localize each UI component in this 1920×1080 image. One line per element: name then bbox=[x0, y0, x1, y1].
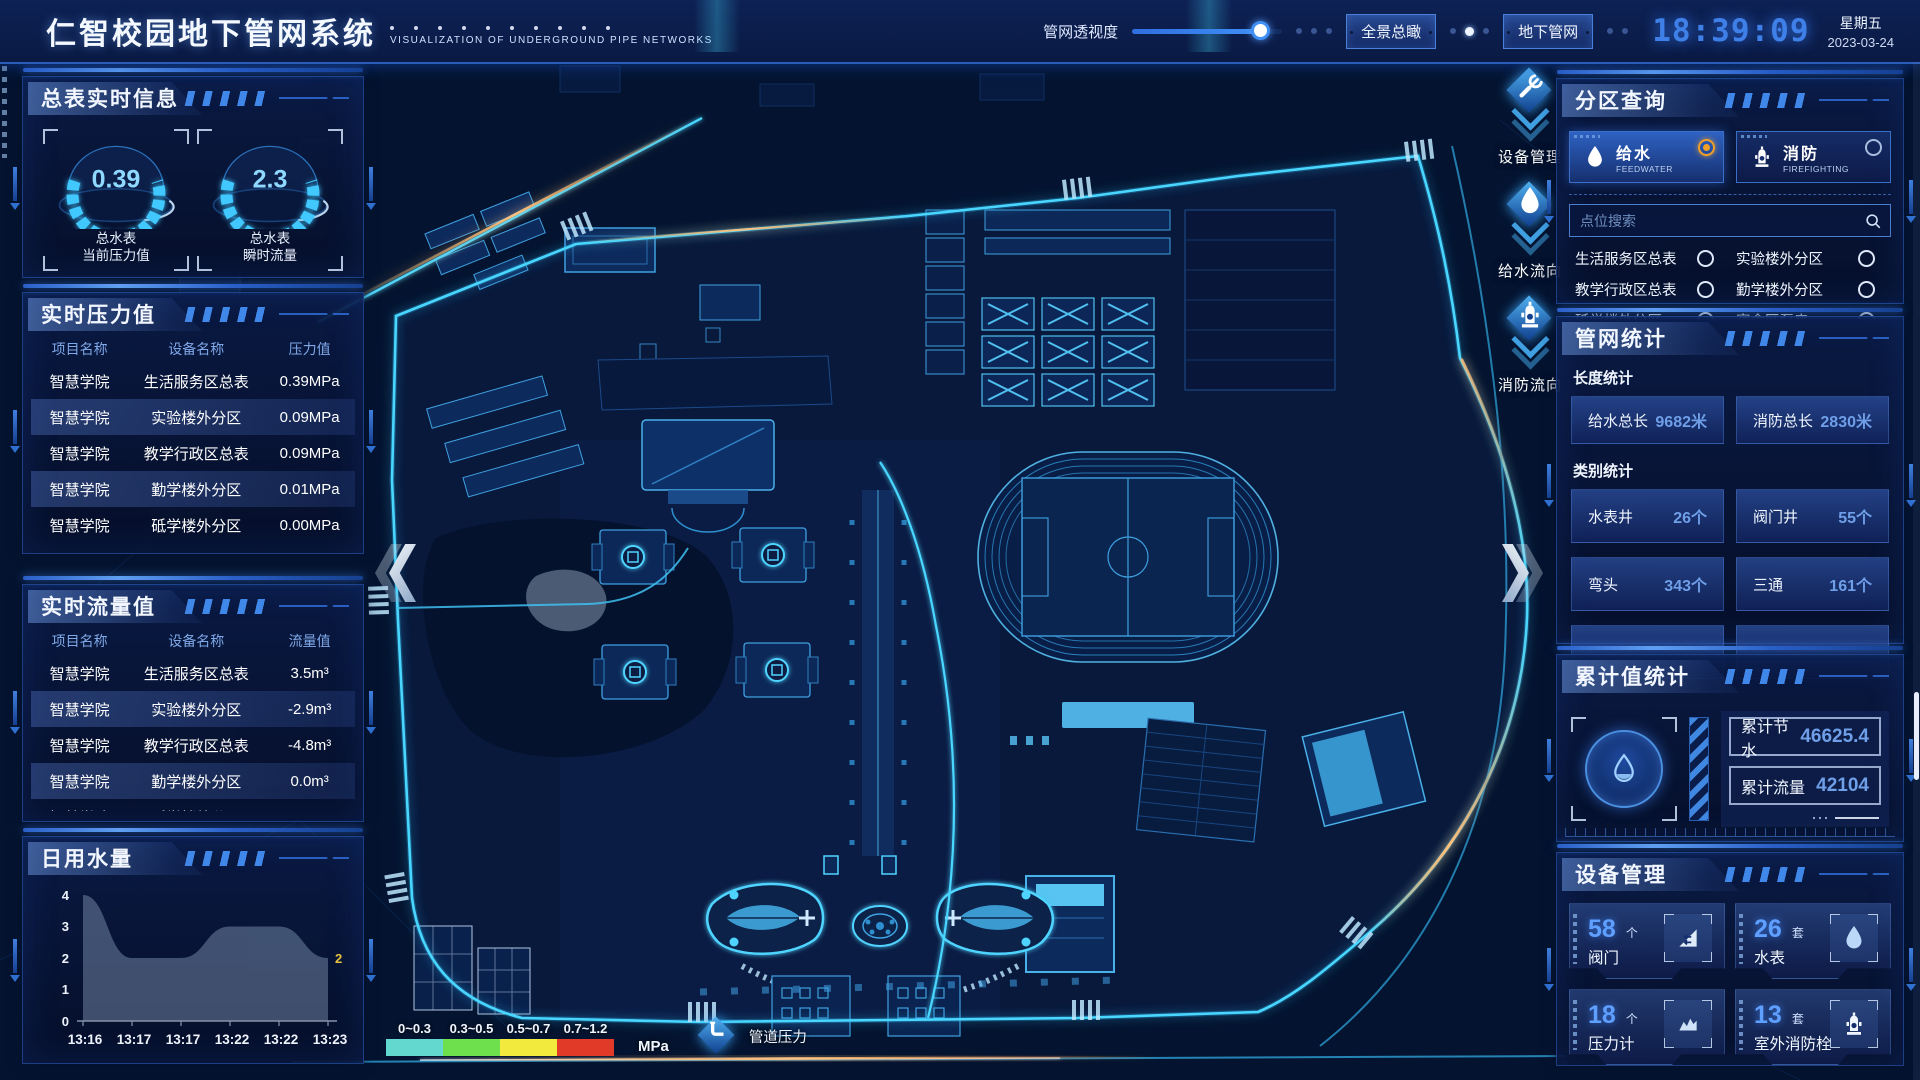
panel-title: 管网统计 bbox=[1575, 323, 1667, 353]
panel-side-decoration bbox=[369, 410, 373, 444]
accumulated-value-row: 累计流量42104 bbox=[1729, 766, 1881, 805]
zone-item[interactable]: 勤学楼外分区 bbox=[1730, 274, 1891, 305]
pressure-gauge-icon bbox=[1675, 1011, 1701, 1037]
panel-side-decoration bbox=[13, 410, 17, 444]
device-card-water-meters[interactable]: 26套 水表 bbox=[1735, 903, 1891, 979]
gauge-label: 当前压力值 bbox=[43, 247, 189, 264]
panel-zone-query: 分区查询 给水 FEEDWATER 消防 FIREFIGHTING bbox=[1556, 78, 1904, 304]
radio-icon bbox=[1697, 281, 1714, 298]
pressure-gauge-widget: 0.39 总水表当前压力值 bbox=[43, 129, 189, 271]
length-stats-label: 长度统计 bbox=[1573, 367, 1903, 388]
stat-box: 消防总长2830米 bbox=[1736, 396, 1889, 444]
title-slashes-decoration bbox=[183, 851, 269, 866]
slider-fill bbox=[1132, 29, 1261, 34]
overview-button-label: 全景总瞰 bbox=[1361, 24, 1421, 41]
table-row[interactable]: 智慧学院实验楼外分区0.09MPa bbox=[31, 399, 355, 435]
svg-text:1: 1 bbox=[62, 982, 69, 997]
accumulated-value-row: 累计节水46625.4 bbox=[1729, 717, 1881, 756]
table-header: 项目名称设备名称流量值 bbox=[23, 627, 363, 655]
svg-text:13:23: 13:23 bbox=[313, 1032, 348, 1047]
svg-text:4: 4 bbox=[62, 888, 70, 903]
pipe-opacity-label: 管网透视度 bbox=[1043, 21, 1118, 42]
dashboard-root: 仁智校园地下管网系统 VISUALIZATION OF UNDERGROUND … bbox=[0, 0, 1920, 1080]
water-saving-icon-frame bbox=[1571, 717, 1677, 821]
panel-pipe-network-stats: 管网统计 长度统计 给水总长9682米 消防总长2830米 类别统计 水表井26… bbox=[1556, 316, 1904, 644]
search-box[interactable] bbox=[1569, 204, 1891, 237]
title-slashes-decoration bbox=[183, 91, 269, 106]
table-row[interactable]: 智慧学院勤学楼外分区0.01MPa bbox=[31, 471, 355, 507]
panel-daily-water-usage: 日用水量 4 3 2 1 0 13:16 13:17 13:17 13:22 1… bbox=[22, 836, 364, 1064]
valve-icon bbox=[1675, 925, 1701, 951]
legend-color-swatch bbox=[386, 1039, 443, 1056]
zone-item[interactable]: 生活服务区总表 bbox=[1569, 243, 1730, 274]
radio-icon bbox=[1697, 250, 1714, 267]
table-row[interactable]: 智慧学院砥学楼外分区0.00MPa bbox=[31, 507, 355, 541]
gauge-icon: 2.3 bbox=[197, 129, 343, 229]
title-line-decoration bbox=[279, 313, 349, 315]
legend-unit-label: MPa bbox=[638, 1038, 669, 1055]
panel-side-decoration bbox=[369, 939, 373, 973]
legend-color-swatch bbox=[443, 1039, 500, 1056]
area-series bbox=[83, 895, 328, 1021]
panel-device-management: 设备管理 58个 阀门 26套 水表 bbox=[1556, 852, 1904, 1066]
title-line-decoration bbox=[1819, 337, 1889, 339]
feedwater-label-en: FEEDWATER bbox=[1616, 164, 1673, 174]
pipe-icon bbox=[706, 1020, 726, 1040]
svg-text:13:16: 13:16 bbox=[68, 1032, 103, 1047]
table-header: 项目名称设备名称压力值 bbox=[23, 335, 363, 363]
series-end-value-label: 2 bbox=[335, 951, 342, 966]
svg-text:2: 2 bbox=[62, 951, 69, 966]
dots-decoration bbox=[1450, 27, 1489, 36]
title-line-decoration bbox=[1819, 99, 1889, 101]
panel-realtime-pressure: 实时压力值 项目名称设备名称压力值 智慧学院生活服务区总表0.39MPa 智慧学… bbox=[22, 292, 364, 554]
device-card-valves[interactable]: 58个 阀门 bbox=[1569, 903, 1725, 979]
fountain bbox=[853, 906, 907, 946]
feedwater-toggle[interactable]: 给水 FEEDWATER bbox=[1569, 131, 1724, 183]
panel-side-decoration bbox=[1547, 464, 1551, 498]
stat-box: 给水总长9682米 bbox=[1571, 396, 1724, 444]
panel-side-decoration bbox=[369, 691, 373, 725]
firefighting-label: 消防 bbox=[1783, 140, 1849, 164]
app-title: 仁智校园地下管网系统 bbox=[46, 9, 376, 53]
radio-icon bbox=[1698, 139, 1715, 156]
pipe-pressure-legend: 0~0.3 0.3~0.5 0.5~0.7 0.7~1.2 MPa 管道压力 bbox=[386, 1016, 807, 1056]
header-bar: 仁智校园地下管网系统 VISUALIZATION OF UNDERGROUND … bbox=[0, 0, 1920, 64]
header-dots-decoration bbox=[390, 26, 713, 30]
app-subtitle: VISUALIZATION OF UNDERGROUND PIPE NETWOR… bbox=[390, 35, 713, 46]
dashed-divider bbox=[1569, 194, 1891, 195]
hydrant-icon bbox=[1751, 144, 1773, 170]
hydrant-icon bbox=[1842, 1010, 1866, 1038]
water-meter-icon bbox=[1842, 924, 1866, 952]
panel-title: 总表实时信息 bbox=[41, 83, 179, 113]
panel-side-decoration bbox=[369, 167, 373, 201]
gauge-label: 总水表 bbox=[43, 230, 189, 247]
dots-decoration bbox=[1296, 28, 1332, 34]
underground-button-label: 地下管网 bbox=[1518, 24, 1578, 41]
time-display: 18:39:09 bbox=[1652, 13, 1809, 49]
daily-water-chart: 4 3 2 1 0 13:16 13:17 13:17 13:22 13:22 … bbox=[41, 883, 351, 1053]
panel-side-decoration bbox=[1547, 739, 1551, 773]
legend-range-label: 0.5~0.7 bbox=[507, 1021, 551, 1036]
zone-item[interactable]: 教学行政区总表 bbox=[1569, 274, 1730, 305]
panel-side-decoration bbox=[1547, 180, 1551, 214]
title-slashes-decoration bbox=[183, 307, 269, 322]
pressure-legend-label: 管道压力 bbox=[749, 1026, 807, 1047]
underground-pipes-button[interactable]: 地下管网 bbox=[1503, 14, 1593, 49]
dots-decoration bbox=[1607, 28, 1628, 34]
tools-icon bbox=[1515, 72, 1545, 102]
gauge-icon: 0.39 bbox=[43, 129, 189, 229]
svg-text:13:17: 13:17 bbox=[117, 1032, 152, 1047]
panel-title: 实时流量值 bbox=[41, 591, 156, 621]
search-icon bbox=[1864, 212, 1882, 230]
radio-icon bbox=[1858, 250, 1875, 267]
legend-range-label: 0.7~1.2 bbox=[564, 1021, 608, 1036]
water-drop-icon bbox=[1609, 752, 1639, 786]
clock: 18:39:09 星期五 2023-03-24 bbox=[1652, 13, 1894, 50]
title-slashes-decoration bbox=[1723, 867, 1809, 882]
overview-button[interactable]: 全景总瞰 bbox=[1346, 14, 1436, 49]
title-slashes-decoration bbox=[1723, 331, 1809, 346]
svg-text:0.39: 0.39 bbox=[92, 166, 141, 194]
water-drop-icon bbox=[1516, 186, 1544, 216]
panel-side-decoration bbox=[13, 167, 17, 201]
panel-side-decoration bbox=[13, 691, 17, 725]
title-slashes-decoration bbox=[1723, 93, 1809, 108]
title-line-decoration bbox=[1819, 873, 1889, 875]
panel-realtime-flow: 实时流量值 项目名称设备名称流量值 智慧学院生活服务区总表3.5m³ 智慧学院实… bbox=[22, 584, 364, 822]
svg-text:13:22: 13:22 bbox=[215, 1032, 250, 1047]
date-display: 2023-03-24 bbox=[1828, 35, 1895, 50]
ruler-decoration bbox=[1565, 828, 1895, 837]
title-slashes-decoration bbox=[183, 599, 269, 614]
device-card-pressure-gauges[interactable]: 18个 压力计 bbox=[1569, 989, 1725, 1065]
table-row[interactable]: 智慧学院砥学楼外分区-2.2m³ bbox=[31, 799, 355, 811]
svg-text:13:22: 13:22 bbox=[264, 1032, 299, 1047]
zone-item[interactable]: 实验楼外分区 bbox=[1730, 243, 1891, 274]
radio-icon bbox=[1858, 281, 1875, 298]
panel-title: 累计值统计 bbox=[1575, 661, 1690, 691]
hydrant-icon bbox=[1516, 300, 1544, 330]
page-scrollbar[interactable] bbox=[1913, 62, 1920, 1080]
gauge-label: 总水表 bbox=[197, 230, 343, 247]
table-row[interactable]: 智慧学院实验楼外分区-2.9m³ bbox=[31, 691, 355, 727]
dots-line-decoration bbox=[1809, 815, 1879, 821]
svg-text:13:17: 13:17 bbox=[166, 1032, 201, 1047]
table-row[interactable]: 智慧学院生活服务区总表3.5m³ bbox=[31, 655, 355, 691]
table-row[interactable]: 智慧学院教学行政区总表0.09MPa bbox=[31, 435, 355, 471]
weekday-display: 星期五 bbox=[1840, 13, 1882, 33]
pond bbox=[423, 519, 733, 758]
panel-title: 实时压力值 bbox=[41, 299, 156, 329]
panel-side-decoration bbox=[1547, 948, 1551, 982]
stat-box: 阀门井55个 bbox=[1736, 489, 1889, 543]
panel-title: 分区查询 bbox=[1575, 85, 1667, 115]
svg-text:3: 3 bbox=[62, 919, 69, 934]
flow-gauge-widget: 2.3 总水表瞬时流量 bbox=[197, 129, 343, 271]
scrollbar-thumb[interactable] bbox=[1914, 692, 1919, 780]
legend-range-label: 0.3~0.5 bbox=[450, 1021, 494, 1036]
table-row[interactable]: 智慧学院教学行政区总表-4.8m³ bbox=[31, 727, 355, 763]
firefighting-toggle[interactable]: 消防 FIREFIGHTING bbox=[1736, 131, 1891, 183]
panel-side-decoration bbox=[13, 939, 17, 973]
left-edge-decoration bbox=[2, 66, 7, 158]
stat-box: 弯头343个 bbox=[1571, 557, 1724, 611]
firefighting-label-en: FIREFIGHTING bbox=[1783, 164, 1849, 174]
title-line-decoration bbox=[279, 605, 349, 607]
stat-box: 三通161个 bbox=[1736, 557, 1889, 611]
device-card-outdoor-hydrants[interactable]: 13套 室外消防栓 bbox=[1735, 989, 1891, 1065]
water-drop-icon bbox=[1584, 144, 1606, 170]
stat-box: 水表井26个 bbox=[1571, 489, 1724, 543]
legend-range-label: 0~0.3 bbox=[398, 1021, 431, 1036]
slider-handle[interactable] bbox=[1251, 21, 1270, 40]
legend-color-swatch bbox=[557, 1039, 614, 1056]
x-tick-labels: 13:16 13:17 13:17 13:22 13:22 13:23 bbox=[68, 1032, 348, 1047]
feedwater-label: 给水 bbox=[1616, 140, 1673, 164]
y-tick-labels: 4 3 2 1 0 bbox=[62, 888, 70, 1029]
table-row[interactable]: 智慧学院勤学楼外分区0.0m³ bbox=[31, 763, 355, 799]
category-stats-label: 类别统计 bbox=[1573, 460, 1903, 481]
svg-text:0: 0 bbox=[62, 1014, 69, 1029]
legend-color-swatch bbox=[500, 1039, 557, 1056]
panel-title: 日用水量 bbox=[41, 843, 133, 873]
title-line-decoration bbox=[279, 857, 349, 859]
table-row[interactable]: 智慧学院生活服务区总表0.39MPa bbox=[31, 363, 355, 399]
striped-divider bbox=[1689, 717, 1709, 821]
title-slashes-decoration bbox=[1723, 669, 1809, 684]
gauge-label: 瞬时流量 bbox=[197, 247, 343, 264]
panel-realtime-meter-info: 总表实时信息 0.39 总水表当前压力值 bbox=[22, 76, 364, 278]
title-line-decoration bbox=[1819, 675, 1889, 677]
title-line-decoration bbox=[279, 97, 349, 99]
search-input[interactable] bbox=[1570, 213, 1864, 229]
panel-accumulated-stats: 累计值统计 累计节水46625.4 累计流量42104 bbox=[1556, 654, 1904, 842]
panel-title: 设备管理 bbox=[1575, 859, 1667, 889]
pipe-opacity-slider[interactable] bbox=[1132, 22, 1282, 40]
radio-icon bbox=[1865, 139, 1882, 156]
svg-text:2.3: 2.3 bbox=[253, 166, 288, 194]
sports-courts bbox=[926, 210, 1335, 406]
